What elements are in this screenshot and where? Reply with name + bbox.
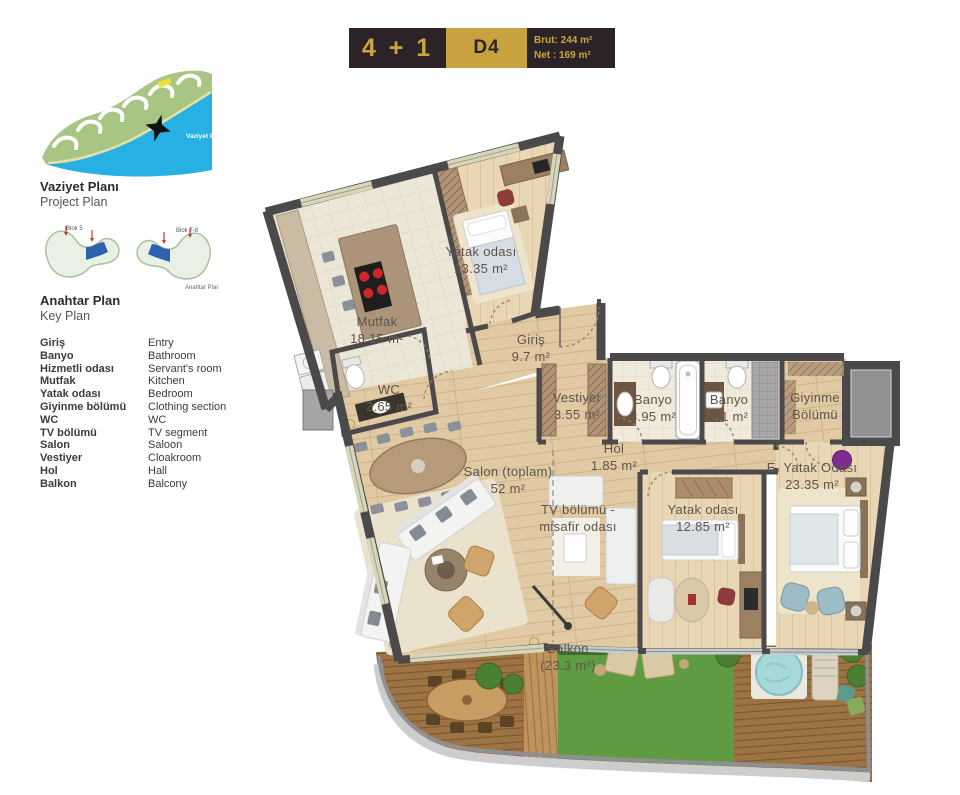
blok-right-label: Blok 7-8 xyxy=(176,228,199,234)
unit-header: 4 + 1 D4 Brut: 244 m² Net : 169 m² xyxy=(349,28,615,68)
toilet xyxy=(728,366,746,388)
key-plan-title: Anahtar Plan xyxy=(40,294,120,309)
room-label-giris: Giriş xyxy=(517,332,545,347)
lamp-2 xyxy=(850,605,862,617)
room-label-hol: Hol xyxy=(604,441,624,456)
legend-term-en: Bedroom xyxy=(148,388,250,401)
balcony-railing-right xyxy=(867,650,869,772)
legend-row: SalonSaloon xyxy=(40,439,250,452)
legend-term-tr: Giriş xyxy=(40,337,148,350)
legend-row: MutfakKitchen xyxy=(40,375,250,388)
legend-term-tr: TV bölümü xyxy=(40,427,148,440)
legend-term-en: Entry xyxy=(148,337,250,350)
room-label-tv-bolumu: TV bölümü - xyxy=(541,502,615,517)
legend-term-tr: Banyo xyxy=(40,350,148,363)
shower xyxy=(752,362,778,438)
room-label-wc: WC xyxy=(378,382,400,397)
room-label-banyo-2-area: 4.1 m² xyxy=(710,409,749,424)
key-plan-subtitle: Key Plan xyxy=(40,309,120,323)
room-label-giris-area: 9.7 m² xyxy=(512,349,551,364)
dressing-wardrobe-top xyxy=(788,362,844,376)
legend-term-en: Kitchen xyxy=(148,375,250,388)
side-table xyxy=(805,601,819,615)
legend-row: Yatak odasıBedroom xyxy=(40,388,250,401)
legend-row: BalkonBalcony xyxy=(40,478,250,491)
room-label-salon-area: 52 m² xyxy=(491,481,526,496)
legend-term-en: Bathroom xyxy=(148,350,250,363)
project-plan-map: Vaziyet Planı xyxy=(40,66,218,184)
key-plan-caption: Anahtar Plan Key Plan xyxy=(40,294,120,323)
map-label: Vaziyet Planı xyxy=(186,133,218,140)
legend-row: WCWC xyxy=(40,414,250,427)
legend-term-tr: Hizmetli odası xyxy=(40,363,148,376)
legend-row: Giyinme bölümüClothing section xyxy=(40,401,250,414)
blok-left-label: Blok 5 xyxy=(66,226,83,232)
legend-row: BanyoBathroom xyxy=(40,350,250,363)
legend-term-tr: Mutfak xyxy=(40,375,148,388)
room-label-e-yatak-odasi: E. Yatak Odası xyxy=(767,460,857,475)
legend-row: GirişEntry xyxy=(40,337,250,350)
key-plan-left-block xyxy=(46,226,119,277)
legend-term-en: Hall xyxy=(148,465,250,478)
room-label-vestiyer: Vestiyer xyxy=(553,390,602,405)
armchair xyxy=(648,578,674,622)
legend-term-tr: Balkon xyxy=(40,478,148,491)
legend-term-en: Saloon xyxy=(148,439,250,452)
closet xyxy=(676,478,732,498)
balcony xyxy=(368,638,880,786)
unit-area-badge: Brut: 244 m² Net : 169 m² xyxy=(527,28,615,68)
headboard xyxy=(860,500,868,578)
net-area: Net : 169 m² xyxy=(534,48,615,64)
project-plan-title: Vaziyet Planı xyxy=(40,180,119,195)
toilet xyxy=(652,366,670,388)
armchair-2 xyxy=(816,586,847,617)
room-label-yatak-odasi-1: Yatak odası xyxy=(446,244,517,259)
room-label-yatak-odasi-2: Yatak odası xyxy=(668,502,739,517)
monitor xyxy=(744,588,758,610)
brut-area: Brut: 244 m² xyxy=(534,33,615,49)
legend-row: TV bölümüTV segment xyxy=(40,427,250,440)
legend-term-en: Servant's room xyxy=(148,363,250,376)
legend-term-en: Clothing section xyxy=(148,401,250,414)
project-plan-subtitle: Project Plan xyxy=(40,195,119,209)
room-label-mutfak: Mutfak xyxy=(357,314,398,329)
unit-code-badge: D4 xyxy=(446,28,527,68)
legend-row: VestiyerCloakroom xyxy=(40,452,250,465)
legend-term-en: WC xyxy=(148,414,250,427)
master-bedroom-furniture xyxy=(778,478,868,620)
desk-chair xyxy=(717,587,737,607)
room-label-giyinme-bolumu-area: Bölümü xyxy=(792,407,838,422)
legend-term-tr: Hol xyxy=(40,465,148,478)
project-plan-caption: Vaziyet Planı Project Plan xyxy=(40,180,119,209)
key-plan-map-label: Anahtar Planı xyxy=(185,285,218,291)
room-label-balkon: Balkon xyxy=(547,641,589,656)
legend-term-tr: Salon xyxy=(40,439,148,452)
tv-table xyxy=(564,534,586,562)
legend-term-en: Balcony xyxy=(148,478,250,491)
coffee-table xyxy=(425,549,467,591)
room-label-salon: Salon (toplam) xyxy=(464,464,553,479)
legend-term-en: TV segment xyxy=(148,427,250,440)
room-label-hol-area: 1.85 m² xyxy=(591,458,638,473)
legend: GirişEntryBanyoBathroomHizmetli odasıSer… xyxy=(40,337,250,491)
room-label-vestiyer-area: 3.55 m² xyxy=(554,407,601,422)
legend-term-tr: WC xyxy=(40,414,148,427)
room-label-banyo-1-area: 3.95 m² xyxy=(630,409,677,424)
room-label-giyinme-bolumu: Giyinme xyxy=(790,390,840,405)
unit-type-badge: 4 + 1 xyxy=(349,28,446,68)
hall-floor xyxy=(538,442,778,472)
legend-term-tr: Giyinme bölümü xyxy=(40,401,148,414)
room-label-yatak-odasi-2-area: 12.85 m² xyxy=(676,519,730,534)
legend-row: HolHall xyxy=(40,465,250,478)
legend-row: Hizmetli odasıServant's room xyxy=(40,363,250,376)
legend-term-tr: Yatak odası xyxy=(40,388,148,401)
room-label-banyo-1: Banyo xyxy=(634,392,672,407)
shaft xyxy=(851,370,891,437)
room-label-wc-area: 2.65 m² xyxy=(366,399,413,414)
room-label-balkon-area: (23.3 m²) xyxy=(540,658,595,673)
headboard xyxy=(738,514,745,564)
room-label-e-yatak-odasi-area: 23.35 m² xyxy=(785,477,839,492)
legend-term-en: Cloakroom xyxy=(148,452,250,465)
room-label-mutfak-area: 18.15 m² xyxy=(350,331,404,346)
room-label-yatak-odasi-1-area: 13.35 m² xyxy=(454,261,508,276)
room-label-tv-bolumu-area: misafir odası xyxy=(539,519,617,534)
lamp-1 xyxy=(850,481,862,493)
room-label-banyo-2: Banyo xyxy=(710,392,748,407)
key-plan-map: Blok 5 Blok 7-8 Anahtar Planı xyxy=(40,218,218,292)
key-plan-right-block xyxy=(137,228,210,279)
terrace-lounger xyxy=(812,648,838,700)
legend-term-tr: Vestiyer xyxy=(40,452,148,465)
